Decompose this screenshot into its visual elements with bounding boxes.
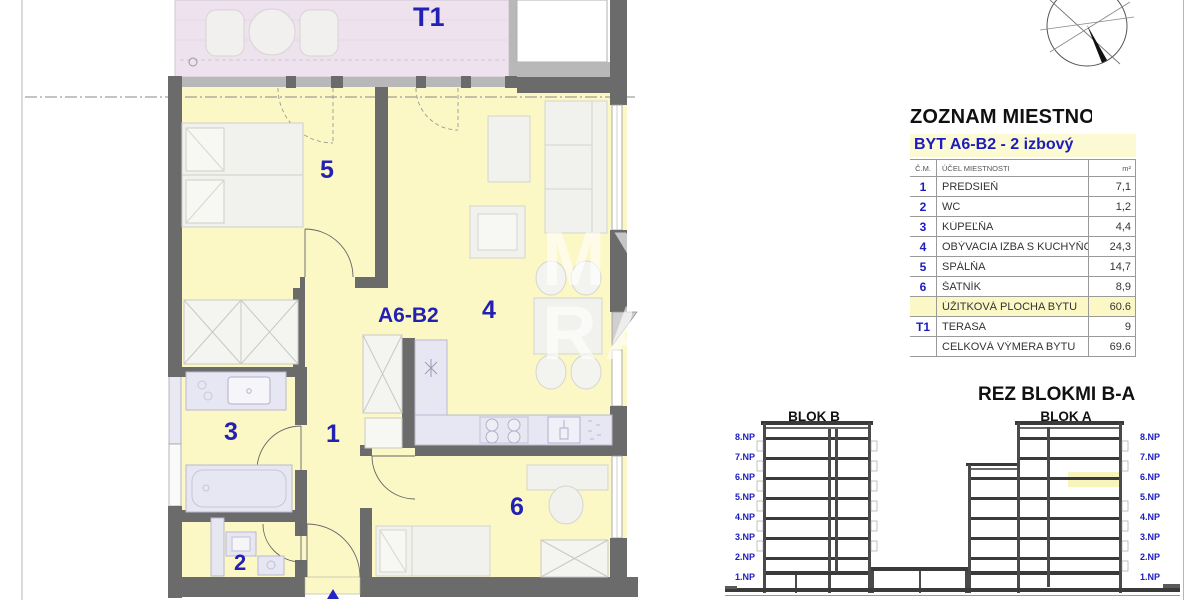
table-row: 2WC1,2 (910, 197, 1135, 217)
drawing-sheet: MY RA T1 5 4 A6-B2 1 3 2 6 ZOZNAM MIESTN… (0, 0, 1200, 600)
compass-icon (1038, 0, 1142, 74)
table-row: CELKOVÁ VÝMERA BYTU69.6 (910, 337, 1135, 357)
table-row: T1TERASA9 (910, 317, 1135, 337)
col-num-header: Č.M. (910, 160, 937, 176)
terrace-area (175, 0, 517, 77)
table-row: 6ŠATNÍK8,9 (910, 277, 1135, 297)
col-name-header: ÚČEL MIESTNOSTI (937, 164, 1088, 173)
room4-label: 4 (482, 298, 496, 323)
block-a (966, 421, 1128, 593)
room-list-panel: ZOZNAM MIESTNOS BYT A6-B2 - 2 izbový Č.M… (910, 106, 1136, 357)
table-row: 1PREDSIEŇ7,1 (910, 177, 1135, 197)
room5-label: 5 (320, 158, 334, 183)
wardrobes (184, 300, 298, 364)
building-section (725, 405, 1180, 600)
terrace-chair (300, 10, 338, 56)
col-area-header: m² (1088, 160, 1135, 176)
bedroom-furniture (182, 123, 303, 227)
table-row: ÚŽITKOVÁ PLOCHA BYTU60.6 (910, 297, 1135, 317)
room-table-body: 1PREDSIEŇ7,12WC1,23KÚPEĽŇA4,44OBÝVACIA I… (910, 177, 1135, 357)
room-list-subtitle: BYT A6-B2 - 2 izbový (910, 134, 1136, 157)
table-header: Č.M. ÚČEL MIESTNOSTI m² (910, 160, 1135, 177)
bottom-wall (168, 577, 638, 599)
room-list-title: ZOZNAM MIESTNOS (910, 106, 1092, 131)
block-b (757, 421, 877, 593)
room6-label: 6 (510, 495, 524, 520)
terrace-label: T1 (413, 4, 445, 31)
sheet-border-right (1183, 0, 1184, 600)
table-row: 5SPÁLŇA14,7 (910, 257, 1135, 277)
floor-plan (0, 0, 700, 600)
table-row: 4OBÝVACIA IZBA S KUCHYŇOU24,3 (910, 237, 1135, 257)
room3-label: 3 (224, 420, 238, 445)
neighbour-terrace (510, 0, 627, 93)
terrace-chair (206, 10, 244, 56)
unit-label: A6-B2 (378, 305, 439, 326)
room-table: Č.M. ÚČEL MIESTNOSTI m² 1PREDSIEŇ7,12WC1… (910, 159, 1136, 357)
terrace-table (249, 9, 295, 55)
table-row: 3KÚPEĽŇA4,4 (910, 217, 1135, 237)
section-title: REZ BLOKMI B-A (978, 384, 1135, 406)
room1-label: 1 (326, 422, 340, 447)
ground-line (725, 584, 1180, 596)
room2-label: 2 (234, 552, 246, 574)
terrace-wall (168, 76, 517, 88)
